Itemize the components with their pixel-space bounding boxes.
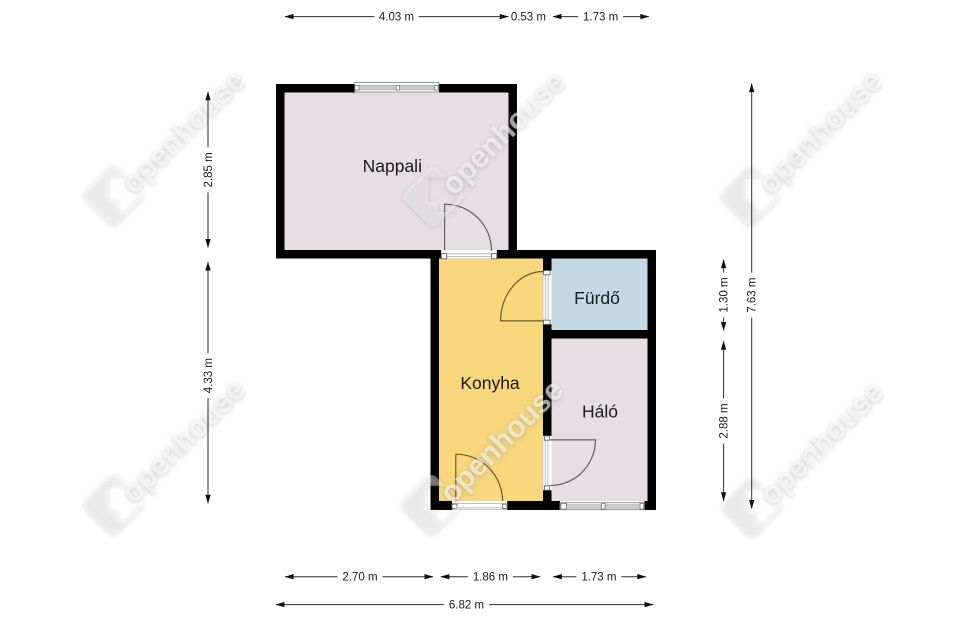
- svg-text:7.63 m: 7.63 m: [747, 278, 759, 313]
- svg-text:Konyha: Konyha: [460, 373, 520, 393]
- svg-text:2.70 m: 2.70 m: [342, 572, 377, 584]
- svg-text:Háló: Háló: [582, 402, 618, 422]
- svg-text:Nappali: Nappali: [363, 156, 422, 176]
- svg-text:4.33 m: 4.33 m: [203, 358, 215, 393]
- svg-text:Fürdő: Fürdő: [574, 288, 620, 308]
- svg-text:1.73 m: 1.73 m: [581, 572, 616, 584]
- svg-text:1.30 m: 1.30 m: [719, 277, 731, 312]
- svg-text:2.88 m: 2.88 m: [719, 403, 731, 438]
- svg-text:6.82 m: 6.82 m: [449, 600, 484, 612]
- svg-text:1.86 m: 1.86 m: [473, 572, 508, 584]
- svg-text:1.73 m: 1.73 m: [583, 12, 618, 24]
- svg-text:4.03 m: 4.03 m: [379, 12, 414, 24]
- svg-text:2.85 m: 2.85 m: [203, 152, 215, 187]
- svg-text:0.53 m: 0.53 m: [511, 12, 546, 24]
